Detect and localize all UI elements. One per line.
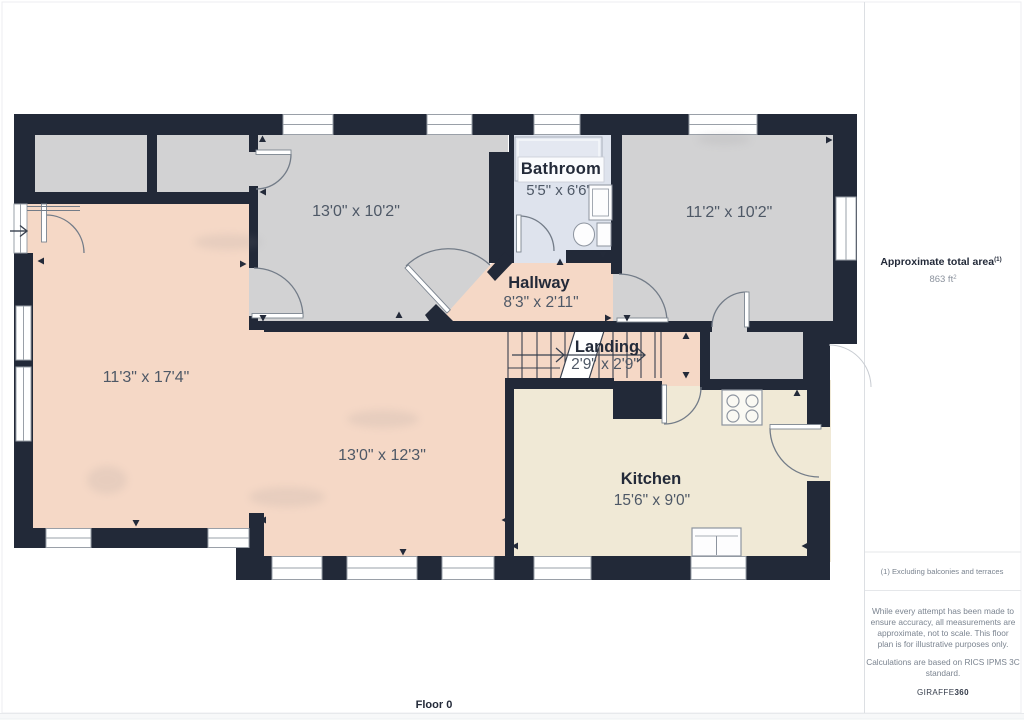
svg-text:approximate, not to scale. Thi: approximate, not to scale. This floor [877,628,1009,638]
svg-text:(1) Excluding balconies and te: (1) Excluding balconies and terraces [881,567,1004,576]
svg-text:15'6" x 9'0": 15'6" x 9'0" [614,492,690,509]
svg-text:863 ft2: 863 ft2 [929,274,957,285]
svg-text:11'3" x 17'4": 11'3" x 17'4" [103,369,190,386]
svg-text:13'0" x 12'3": 13'0" x 12'3" [338,447,426,464]
svg-text:Floor 0: Floor 0 [416,699,453,711]
svg-text:Hallway: Hallway [508,274,570,292]
svg-text:While every attempt has been m: While every attempt has been made to [872,606,1014,616]
svg-text:ensure accuracy, all measureme: ensure accuracy, all measurements are [871,617,1016,627]
svg-text:13'0" x 10'2": 13'0" x 10'2" [312,203,400,220]
svg-text:11'2" x 10'2": 11'2" x 10'2" [686,204,773,221]
svg-text:8'3" x 2'11": 8'3" x 2'11" [503,294,578,311]
svg-text:standard.: standard. [926,668,961,678]
svg-text:Bathroom: Bathroom [521,160,601,178]
svg-text:5'5" x 6'6": 5'5" x 6'6" [526,182,592,199]
svg-text:Calculations are based on RICS: Calculations are based on RICS IPMS 3C [866,657,1020,667]
svg-text:GIRAFFE360: GIRAFFE360 [917,688,969,697]
svg-text:Landing: Landing [575,338,639,356]
svg-text:2'9" x 2'9": 2'9" x 2'9" [571,356,639,373]
svg-text:plan is for illustrative purpo: plan is for illustrative purposes only. [878,639,1009,649]
svg-text:Approximate total area(1): Approximate total area(1) [880,256,1001,268]
svg-text:Kitchen: Kitchen [621,470,682,488]
